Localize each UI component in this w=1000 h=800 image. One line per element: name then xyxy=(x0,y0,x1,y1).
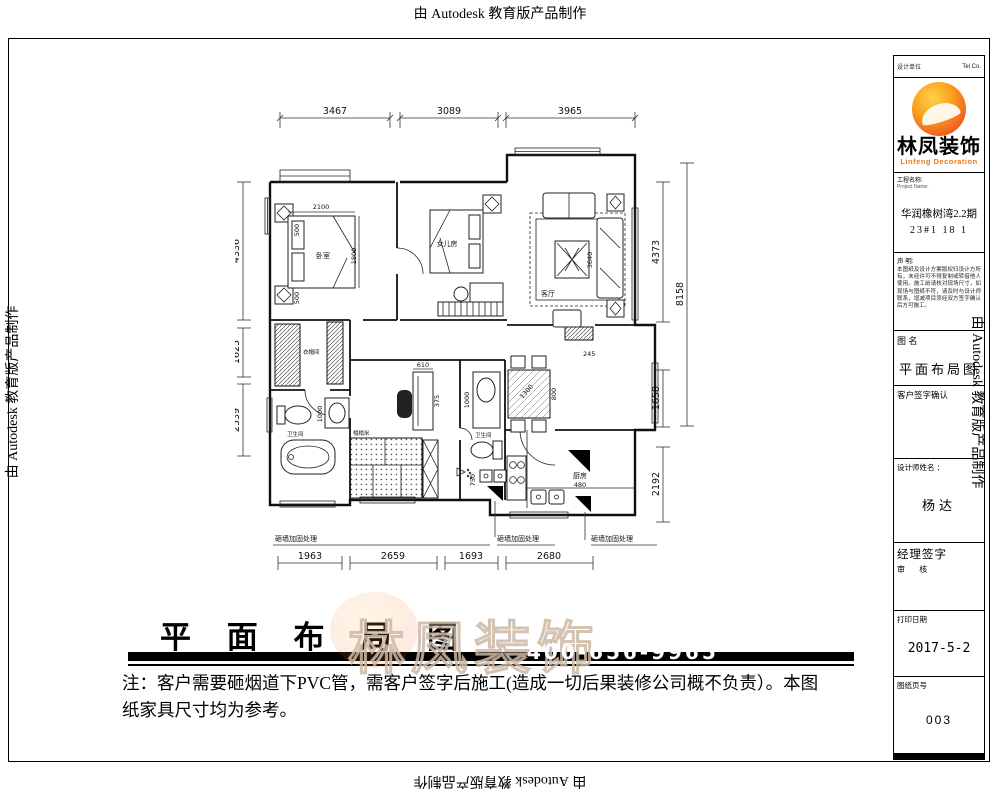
dim-bottom-3: 1693 xyxy=(459,551,483,562)
titleblock-header-left: 设计单位 xyxy=(897,62,921,71)
dim-left-3: 2539 xyxy=(235,408,242,432)
project-sublabel: Project Name: xyxy=(897,184,981,190)
kitchen: 厨房 480 xyxy=(507,430,635,512)
dim-top-3: 3965 xyxy=(558,106,582,117)
dim-cabinet-w: 610 xyxy=(417,361,429,369)
phoenix-logo-icon xyxy=(912,82,966,136)
bathroom-center: 1000 卫生间 750 xyxy=(457,372,506,501)
dim-right-3: 2192 xyxy=(651,472,662,496)
master-bedroom: 2100 1800 500 500 卧室 xyxy=(275,203,359,304)
autodesk-stamp-top: 由 Autodesk 教育版产品制作 xyxy=(360,3,640,23)
designer-name: 杨达 xyxy=(897,495,981,514)
reinforce-note-3: 砸墙加固处理 xyxy=(591,534,633,543)
room-label-living: 客厅 xyxy=(541,289,555,298)
drawing-sheet: 由 Autodesk 教育版产品制作 由 Autodesk 教育版产品制作 由 … xyxy=(0,0,1000,800)
dim-basin2: 1000 xyxy=(463,392,471,409)
dim-kitchen: 480 xyxy=(574,481,586,489)
kids-room: 女儿房 xyxy=(430,195,503,316)
page-number-value: 003 xyxy=(897,713,981,727)
dim-left-2: 1625 xyxy=(235,340,242,364)
dim-right-1: 4373 xyxy=(651,240,662,264)
client-sign-section: 客户签字确认 xyxy=(894,386,984,459)
reinforce-note-2: 砸墙加固处理 xyxy=(497,534,539,543)
room-label-kitchen: 厨房 xyxy=(573,471,587,480)
manager-sign-label: 经理签字 xyxy=(897,546,981,562)
drawing-name-label: 图 名 xyxy=(897,334,981,347)
dim-bed-width: 2100 xyxy=(313,203,330,211)
room-label-bath1: 卫生间 xyxy=(287,430,304,438)
manager-sign-section: 经理签字 审 核 xyxy=(894,543,984,611)
room-label-bath2: 卫生间 xyxy=(475,431,492,439)
print-date-value: 2017-5-2 xyxy=(897,641,981,656)
statement-section: 声 明: 本图纸及设计方案版权归设计方所有，未经许可不得复制或转借他人使用。施工… xyxy=(894,253,984,331)
dim-top-1: 3467 xyxy=(323,106,347,117)
statement-text: 本图纸及设计方案版权归设计方所有，未经许可不得复制或转借他人使用。施工前请核对现… xyxy=(897,267,981,310)
project-unit: 23#1 18 1 xyxy=(897,225,981,236)
dim-nightstand-bottom: 500 xyxy=(293,292,301,304)
room-label-cloak: 衣帽间 xyxy=(303,348,320,356)
designer-section: 设计师姓名 ： 杨达 xyxy=(894,459,984,543)
company-logo: 林凤装饰 Linfeng Decoration xyxy=(894,78,984,173)
reinforce-notes: 砸墙加固处理 砸墙加固处理 砸墙加固处理 xyxy=(273,501,657,545)
page-number-section: 图纸页号 003 xyxy=(894,677,984,747)
dim-bottom-4: 2680 xyxy=(537,551,561,562)
autodesk-stamp-bottom: 由 Autodesk 教育版产品制作 xyxy=(360,772,640,792)
dim-basin1: 1000 xyxy=(316,406,324,423)
drawing-name-value: 平面布局图 xyxy=(897,359,981,378)
massage-chair xyxy=(397,390,412,418)
dim-column: 245 xyxy=(583,350,595,358)
titleblock-header-right: Tel Co. xyxy=(962,64,981,70)
tatami-room: 610 375 榻榻米 xyxy=(350,361,441,498)
project-name: 华润橡树湾2.2期 xyxy=(897,206,981,221)
logo-name-cn: 林凤装饰 xyxy=(894,137,984,157)
dim-left-1: 4336 xyxy=(235,239,242,263)
bathroom-left: 1000 卫生间 xyxy=(277,398,349,474)
manager-review-label: 审 核 xyxy=(897,564,981,575)
project-section: 工程名称: Project Name: 华润橡树湾2.2期 23#1 18 1 xyxy=(894,173,984,253)
statement-label: 声 明: xyxy=(897,255,981,265)
cloakroom: 衣帽间 xyxy=(275,322,343,386)
dim-right-outer: 8158 xyxy=(675,282,686,306)
print-date-section: 打印日期 2017-5-2 xyxy=(894,611,984,677)
room-label-master: 卧室 xyxy=(316,251,330,260)
dim-nightstand-top: 500 xyxy=(293,224,301,236)
note-line-2: 纸家具尺寸均为参考。 xyxy=(122,697,872,724)
room-label-tatami: 榻榻米 xyxy=(353,429,370,437)
title-block: 设计单位 Tel Co. 林凤装饰 Linfeng Decoration 工程名… xyxy=(893,55,985,760)
reinforce-flag-2 xyxy=(575,496,591,512)
print-date-label: 打印日期 xyxy=(897,614,981,625)
dim-cabinet-d: 375 xyxy=(433,395,441,407)
dim-sofa: 3640 xyxy=(586,252,594,269)
range-hood xyxy=(568,450,590,472)
designer-label: 设计师姓名 ： xyxy=(897,462,981,473)
dim-bottom-1: 1963 xyxy=(298,551,322,562)
reinforce-note-1: 砸墙加固处理 xyxy=(275,534,317,543)
page-number-label: 图纸页号 xyxy=(897,680,981,691)
dining-area: 1300 800 xyxy=(508,356,558,432)
screen-column xyxy=(565,327,593,340)
logo-name-en: Linfeng Decoration xyxy=(894,157,984,166)
floor-plan: 2100 1800 500 500 卧室 女儿房 xyxy=(235,88,705,588)
reinforce-flag-1 xyxy=(487,486,503,501)
drawing-name-section: 图 名 平面布局图 xyxy=(894,331,984,386)
dim-right-2: 1658 xyxy=(651,386,662,410)
dim-bed-depth: 1800 xyxy=(350,248,358,265)
dim-bottom-2: 2659 xyxy=(381,551,405,562)
watermark-phone: 400-656-9965 xyxy=(527,640,719,664)
project-label: 工程名称: xyxy=(897,175,981,184)
titleblock-bottom-bar xyxy=(894,753,984,759)
client-sign-label: 客户签字确认 xyxy=(897,389,981,401)
dim-table-d: 800 xyxy=(550,388,558,400)
dim-shower: 750 xyxy=(469,474,477,486)
dim-top-2: 3089 xyxy=(437,106,461,117)
room-label-kids: 女儿房 xyxy=(437,239,458,248)
